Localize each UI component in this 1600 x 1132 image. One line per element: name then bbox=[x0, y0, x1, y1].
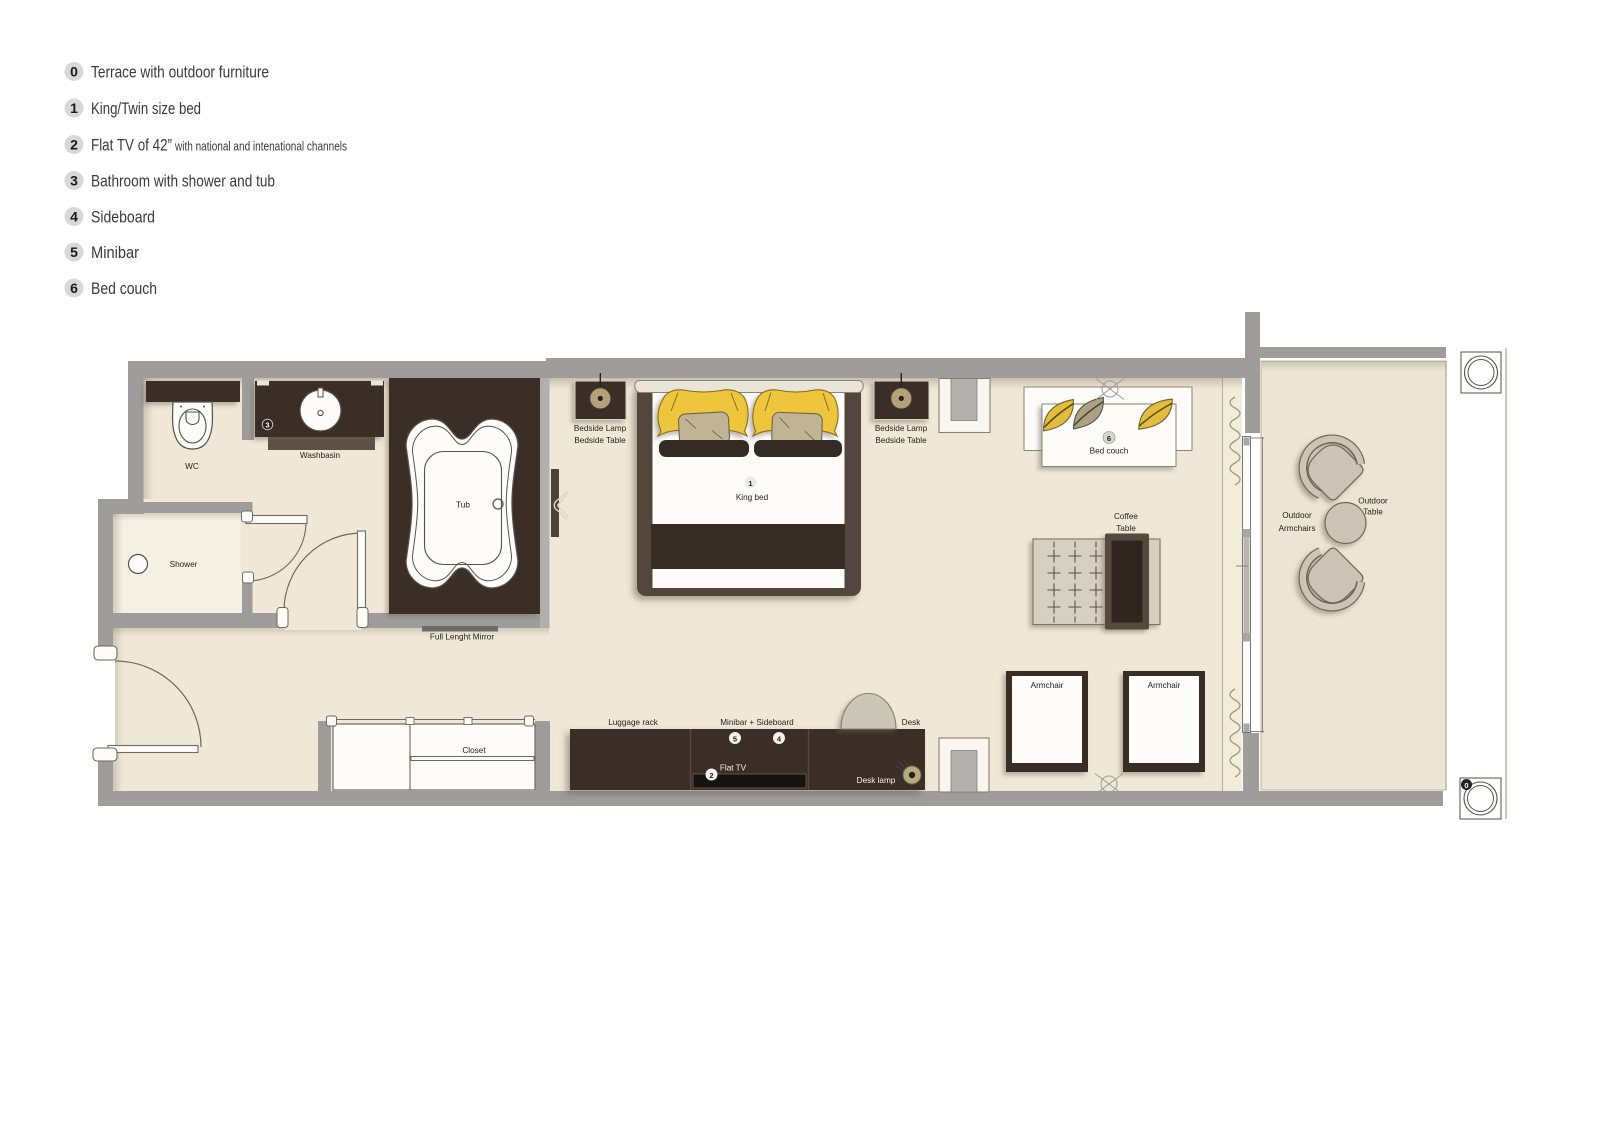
svg-text:1: 1 bbox=[748, 479, 752, 488]
svg-text:Full Lenght Mirror: Full Lenght Mirror bbox=[430, 633, 494, 642]
svg-text:4: 4 bbox=[70, 209, 78, 225]
svg-text:Minibar + Sideboard: Minibar + Sideboard bbox=[720, 718, 794, 727]
svg-text:Tub: Tub bbox=[456, 501, 470, 510]
svg-text:Table: Table bbox=[1363, 508, 1383, 517]
svg-text:2: 2 bbox=[709, 771, 713, 780]
svg-text:Bed couch: Bed couch bbox=[1090, 447, 1129, 456]
svg-text:Armchair: Armchair bbox=[1148, 681, 1181, 690]
svg-text:Shower: Shower bbox=[170, 560, 198, 569]
svg-text:3: 3 bbox=[265, 421, 269, 430]
svg-text:Bedside Table: Bedside Table bbox=[574, 436, 626, 445]
svg-text:Armchairs: Armchairs bbox=[1279, 524, 1316, 533]
svg-text:King bed: King bed bbox=[736, 493, 769, 502]
svg-text:Outdoor: Outdoor bbox=[1282, 511, 1312, 520]
svg-text:Bedside Lamp: Bedside Lamp bbox=[574, 424, 627, 433]
svg-text:Closet: Closet bbox=[462, 746, 486, 755]
svg-text:0: 0 bbox=[70, 64, 78, 80]
svg-text:Bathroom with shower and tub: Bathroom with shower and tub bbox=[91, 172, 275, 191]
svg-text:3: 3 bbox=[70, 173, 78, 189]
svg-text:WC: WC bbox=[185, 462, 199, 471]
svg-text:Bed couch: Bed couch bbox=[91, 279, 157, 298]
svg-text:Desk: Desk bbox=[902, 718, 922, 727]
svg-text:Flat TV of 42”: Flat TV of 42” bbox=[91, 136, 172, 155]
svg-text:Coffee: Coffee bbox=[1114, 512, 1138, 521]
svg-text:6: 6 bbox=[70, 280, 78, 296]
svg-text:Desk lamp: Desk lamp bbox=[857, 776, 896, 785]
svg-text:Flat TV: Flat TV bbox=[720, 764, 747, 773]
svg-text:0: 0 bbox=[1464, 781, 1468, 790]
svg-text:Luggage rack: Luggage rack bbox=[608, 718, 659, 727]
svg-text:Terrace with outdoor furniture: Terrace with outdoor furniture bbox=[91, 63, 269, 82]
svg-text:Bedside Table: Bedside Table bbox=[875, 436, 927, 445]
svg-text:King/Twin size bed: King/Twin size bed bbox=[91, 99, 201, 118]
svg-text:Sideboard: Sideboard bbox=[91, 208, 155, 227]
svg-text:Minibar: Minibar bbox=[91, 243, 139, 262]
svg-text:2: 2 bbox=[70, 137, 78, 153]
svg-text:with national and intenational: with national and intenational channels bbox=[174, 139, 347, 154]
svg-text:6: 6 bbox=[1107, 434, 1111, 443]
svg-text:5: 5 bbox=[70, 244, 78, 260]
svg-text:Outdoor: Outdoor bbox=[1358, 497, 1388, 506]
svg-text:5: 5 bbox=[733, 735, 737, 744]
svg-text:Bedside Lamp: Bedside Lamp bbox=[875, 424, 928, 433]
svg-text:Armchair: Armchair bbox=[1031, 681, 1064, 690]
svg-text:Washbasin: Washbasin bbox=[300, 451, 341, 460]
svg-text:Table: Table bbox=[1116, 524, 1136, 533]
svg-text:1: 1 bbox=[70, 100, 78, 116]
